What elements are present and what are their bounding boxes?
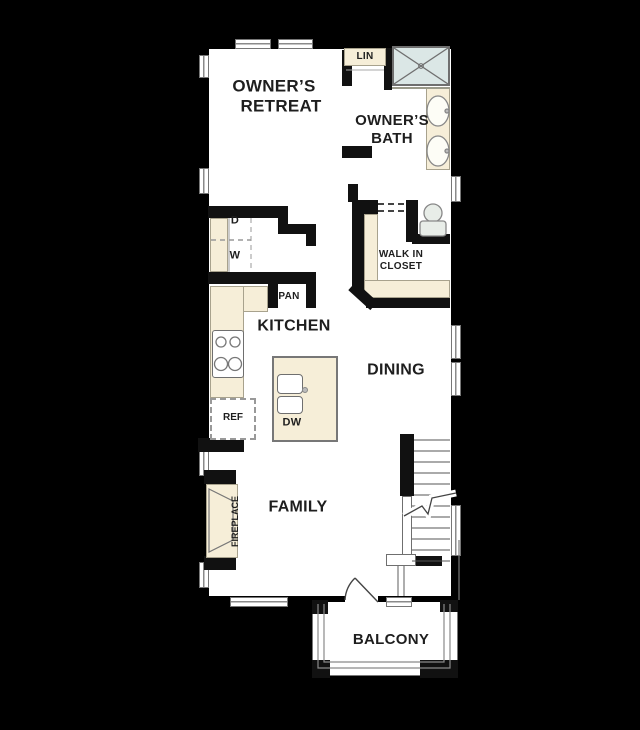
label-owners-bath: OWNER’S BATH xyxy=(355,112,429,148)
label-family: FAMILY xyxy=(269,497,328,516)
label-kitchen: KITCHEN xyxy=(257,316,330,335)
shower-glass-lines xyxy=(394,48,448,84)
cooktop-burners xyxy=(215,337,242,371)
toilet xyxy=(420,204,446,236)
label-fireplace: FIREPLACE xyxy=(228,486,242,556)
label-dw: DW xyxy=(283,416,302,429)
island-faucet xyxy=(303,388,308,393)
closet-opening-dashes xyxy=(378,204,406,211)
stair-lower-rails xyxy=(398,566,404,596)
label-lin: LIN xyxy=(356,51,373,63)
vanity-sinks xyxy=(427,96,449,166)
label-walk-in-closet: WALK IN CLOSET xyxy=(379,249,423,273)
balcony-door xyxy=(345,578,378,602)
label-dryer: D xyxy=(231,214,239,227)
label-dining: DINING xyxy=(367,360,425,379)
label-balcony: BALCONY xyxy=(353,631,429,649)
closet-angled-wall xyxy=(352,286,374,306)
label-washer: W xyxy=(230,249,241,262)
label-pan: PAN xyxy=(278,291,299,303)
floor-plan: OWNER’S RETREAT LIN OWNER’S BATH WALK IN… xyxy=(0,0,640,730)
label-ref: REF xyxy=(223,412,243,424)
label-owners-retreat: OWNER’S RETREAT xyxy=(226,77,321,118)
